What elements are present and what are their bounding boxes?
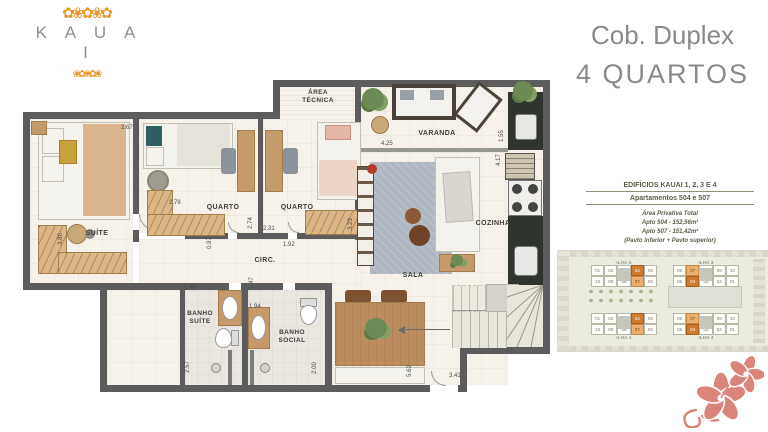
keyplan-unit: 01 [726,324,739,335]
oven [505,153,535,180]
building-core [699,268,712,281]
brand-name: K A U A I [34,23,144,63]
keyplan-unit: 02 [713,324,726,335]
central-building [668,286,742,308]
keyplan-unit: 07 [631,276,644,287]
toilet [215,328,232,348]
flower-cluster-icon: ✿❀✿❀✿ [28,6,144,21]
wall [237,233,288,239]
flowers [451,254,463,266]
plant [513,81,533,101]
wall [258,116,263,233]
keyplan-building-ilha1: 01020304051009080706 ILHA 1 [591,313,657,340]
table-plant [365,318,387,338]
keyplan-unit: 04 [686,324,699,335]
daybed-cushion [442,171,473,223]
apto-507-area: Apto 507 - 151,42m² [586,228,754,237]
keyplan-building-ilha3: ILHA 3 06070809100504030201 [673,260,739,287]
sofa-pillow [430,90,444,100]
teal-pillow [146,126,162,146]
wall [100,283,107,392]
keyplan-unit: 09 [713,265,726,276]
burner [528,184,538,194]
road [558,346,768,351]
label-line: SOCIAL [262,337,322,345]
sofa-pillow [400,90,414,100]
keyplan-unit: 04 [631,313,644,324]
wall [133,116,139,214]
dimension-label: 0.97 [207,237,213,249]
wardrobe [58,252,127,274]
label-line: BANHO [262,329,322,337]
shower-partition [250,350,254,385]
keyplan-unit: 07 [631,324,644,335]
bar-cart [367,164,377,174]
dimension-label: 4.17 [496,154,502,166]
dimension-label: 1.94 [249,304,261,310]
toilet-tank [231,330,239,346]
room-label-varanda: VARANDA [405,130,469,138]
title-line2: 4 QUARTOS [560,59,765,90]
burner [512,184,522,194]
daybed [435,157,480,252]
wall [325,283,332,385]
parking-strip [753,259,765,343]
keyplan-unit: 10 [726,313,739,324]
wall [23,112,30,290]
nightstand [31,121,47,135]
keyplan-unit: 09 [713,313,726,324]
dimension-label: 3.23 [348,218,354,230]
room-label-banho-suite: BANHO SUÍTE [170,310,230,326]
keyplan-unit: 04 [686,276,699,287]
round-table [371,116,389,134]
wardrobe [147,214,225,236]
keyplan-unit: 05 [673,324,686,335]
dimension-label: 2.67 [121,125,133,131]
stair-steps [452,310,507,348]
title-line1: Cob. Duplex [560,20,765,51]
area-title: Área Privativa Total [586,210,754,219]
desk [237,130,255,192]
suite-bed-blanket [83,124,126,216]
floor-plan: SUÍTE QUARTO QUARTO ÁREA TÉCNICA VARANDA… [15,78,560,400]
apartments-heading: Apartamentos 504 e 507 [586,195,754,205]
dimension-label: 3.80 [58,233,64,245]
shower-partition [228,350,232,385]
label-line: BANHO [170,310,230,318]
pouf [405,208,421,224]
dimension-label: 1.47 [249,277,255,289]
keyplan-unit: 09 [604,276,617,287]
shower-head [260,363,270,373]
wall [543,80,550,354]
page-title: Cob. Duplex 4 QUARTOS [560,20,765,90]
room-label-sala: SALA [383,272,443,280]
room-label-banho-social: BANHO SOCIAL [262,329,322,345]
pavement-note: (Pavto inferior + Pavto superior) [586,237,754,246]
building-label: ILHA 1 [591,335,657,340]
keyplan-unit: 06 [644,276,657,287]
label-line: ÁREA [284,89,352,97]
burner [512,202,522,212]
pink-pillow [325,125,351,140]
wall [133,230,139,242]
dimension-label: 2.74 [248,217,254,229]
hall-floor [107,290,183,385]
brand-logo: ✿❀✿❀✿ K A U A I ··· ········ ··· ❀✿❀✿❀ [28,6,144,80]
keyplan-building-ilha4: 06070809100504030201 ILHA 4 [673,313,739,340]
desk [265,130,283,192]
bed-blanket [319,160,357,196]
keyplan-unit: 01 [726,276,739,287]
keyplan-building-ilha2: ILHA 2 01020304051009080706 [591,260,657,287]
hibiscus-flower-icon [672,352,764,428]
keyplan-unit: 09 [604,324,617,335]
varanda-sofa [392,84,456,120]
wall [241,283,283,290]
kitchen-sink [514,246,538,276]
arrow-head-icon [394,326,405,334]
wall [107,283,229,290]
trees [586,287,658,305]
room-label-quarto2: QUARTO [267,204,327,212]
room-label-quarto1: QUARTO [193,204,253,212]
dimension-label: 1.92 [283,242,295,248]
dimension-label: 4.25 [381,141,393,147]
label-line: SUÍTE [170,318,230,326]
keyplan-unit: 02 [604,265,617,276]
label-line: TÉCNICA [284,97,352,105]
keyplan-unit: 05 [644,265,657,276]
building-label: ILHA 4 [673,335,739,340]
dimension-label: 2.78 [169,200,181,206]
dimension-label: 2.00 [312,362,318,374]
keyplan-unit: 10 [591,276,604,287]
pouf [147,170,169,192]
marketing-floorplan-sheet: { "logo": { "brand": "K A U A I", "tagli… [0,0,768,432]
entry-door-opening [430,385,458,392]
shower-head [211,363,221,373]
room-label-cozinha: COZINHA [461,220,525,228]
road [558,251,768,257]
keyplan-unit: 05 [673,276,686,287]
desk-chair [221,148,236,174]
wall [460,347,550,354]
dimension-label: 2.57 [185,361,191,373]
stair-winder-fan [507,285,543,347]
room-label-area-tecnica: ÁREA TÉCNICA [284,89,352,105]
pillow [146,147,164,166]
dimension-label: 2.31 [263,226,275,232]
wall [100,385,467,392]
keyplan-unit: 04 [631,265,644,276]
keyplan-unit: 06 [673,313,686,324]
sala-sofa [357,166,374,266]
stair-direction-arrow [400,329,450,330]
dimension-label: 3.41 [449,373,461,379]
building-core [699,316,712,329]
keyplan-unit: 02 [713,276,726,287]
apto-504-area: Apto 504 - 152,56m² [586,219,754,228]
keyplan-unit: 07 [686,265,699,276]
keyplan-unit: 02 [604,313,617,324]
kitchen-sink [515,114,537,140]
varanda-railing [358,148,508,152]
dimension-label: 1.55 [499,130,505,142]
desk-chair [283,148,298,174]
keyplan-unit: 01 [591,313,604,324]
wall [23,112,280,119]
keyplan-unit: 01 [591,265,604,276]
building-core [617,268,630,281]
burner [528,202,538,212]
keyplan-unit: 10 [726,265,739,276]
site-key-plan: ILHA 2 01020304051009080706 ILHA 3 06070… [557,250,768,352]
building-core [617,316,630,329]
keyplan-unit: 06 [644,324,657,335]
plant [362,88,384,110]
keyplan-unit: 07 [686,313,699,324]
apartment-info: EDIFÍCIOS KAUAI 1, 2, 3 E 4 Apartamentos… [586,182,754,246]
stair-steps-dashed [452,285,487,312]
dimension-label: 1.49 [184,285,196,291]
accent-pillow [59,140,77,164]
pouf [409,225,430,246]
keyplan-unit: 05 [644,313,657,324]
wall [23,283,107,290]
stove [508,180,542,216]
room-label-suite: SUÍTE [67,230,127,238]
buildings-heading: EDIFÍCIOS KAUAI 1, 2, 3 E 4 [586,182,754,192]
room-label-circ: CIRC. [237,257,293,265]
keyplan-unit: 06 [673,265,686,276]
keyplan-unit: 10 [591,324,604,335]
dimension-label: 5.62 [407,365,413,377]
